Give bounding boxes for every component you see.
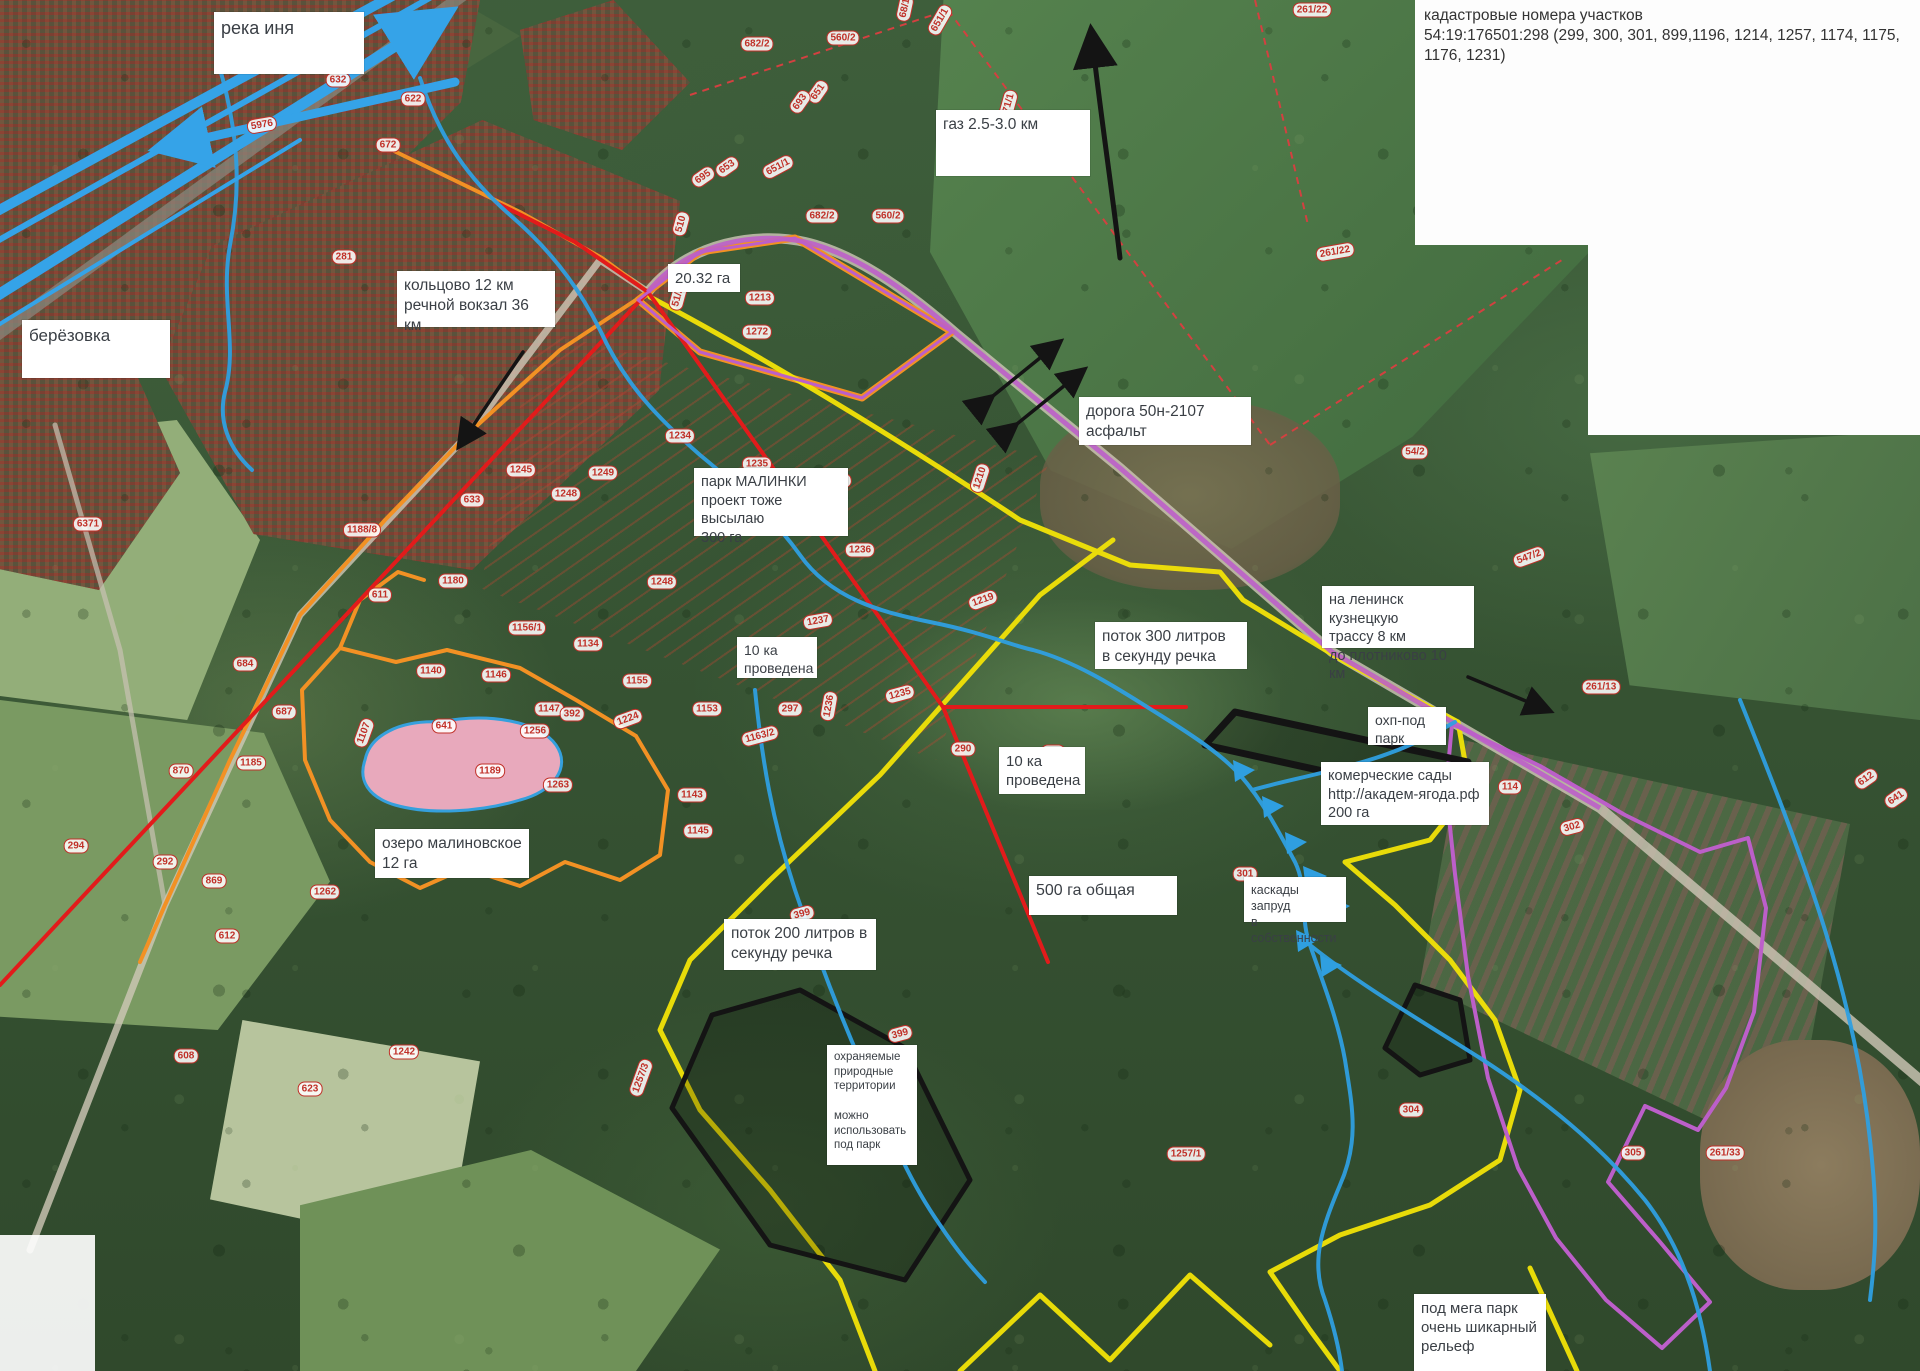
label-na-leninsk: на ленинск кузнецкую трассу 8 км до плот…: [1322, 586, 1474, 648]
label-reka-inya: река иня: [214, 12, 364, 74]
label-berezovka: берёзовка: [22, 320, 170, 378]
label-ohp-pod-park: охп-под парк: [1368, 707, 1446, 745]
satellite-map-canvas[interactable]: кадастровые номера участков 54:19:176501…: [0, 0, 1920, 1371]
label-kaskady: каскады запруд в собственности: [1244, 877, 1346, 922]
label-potok-300: поток 300 литров в секунду речка: [1095, 622, 1247, 669]
label-kommercheskie-sady: комерческие сады http://академ-ягода.рф …: [1321, 762, 1489, 825]
label-gaz: газ 2.5-3.0 км: [936, 110, 1090, 176]
label-ohranyaemye: охраняемые природные территории можно ис…: [827, 1045, 917, 1165]
label-mega-park: под мега парк очень шикарный рельеф: [1414, 1294, 1546, 1371]
label-koltsovo: кольцово 12 км речной вокзал 36 км: [397, 271, 555, 327]
label-doroga: дорога 50н-2107 асфальт: [1079, 397, 1251, 445]
label-layer: река иняберёзовкакольцово 12 км речной в…: [0, 0, 1920, 1371]
label-provedena-2: 10 ка проведена: [999, 747, 1085, 794]
label-ga-500: 500 га общая: [1029, 876, 1177, 915]
label-ga-2032: 20.32 га: [668, 264, 740, 292]
label-ozero-malinovskoe: озеро малиновское 12 га: [375, 829, 529, 878]
label-provedena-1: 10 ка проведена: [737, 637, 817, 678]
label-potok-200: поток 200 литров в секунду речка: [724, 919, 876, 970]
label-park-malinki: парк МАЛИНКИ проект тоже высылаю 300 га: [694, 468, 848, 536]
